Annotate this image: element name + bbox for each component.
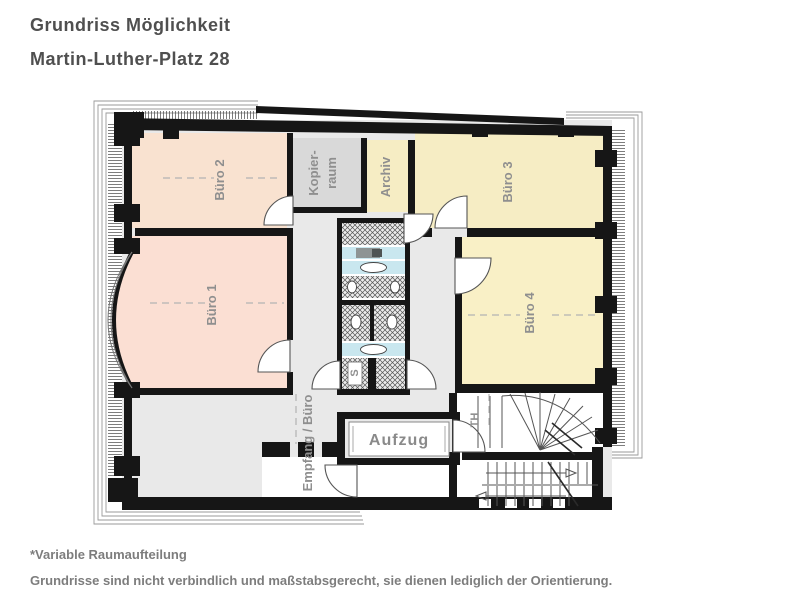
room-buero-2 <box>132 133 287 228</box>
toilet-icon <box>351 315 361 329</box>
label-buero-1: Büro 1 <box>204 284 219 325</box>
wall-core-top <box>337 218 410 223</box>
wall-right <box>603 126 612 447</box>
wc-core <box>342 223 405 389</box>
wall-buero1-buero2 <box>135 228 293 236</box>
footnote-variable: *Variable Raumaufteilung <box>30 542 790 568</box>
wall-aufzug-top <box>337 412 460 419</box>
page-subtitle: Martin-Luther-Platz 28 <box>30 42 231 76</box>
wall-buero3-buero4 <box>467 228 603 237</box>
toilet-icon <box>387 315 397 329</box>
label-empfang: Empfang / Büro <box>300 395 315 492</box>
hatch-band-top <box>131 111 259 119</box>
label-aufzug: Aufzug <box>369 432 429 449</box>
sink-icon <box>361 345 387 355</box>
page-title: Grundriss Möglichkeit <box>30 8 231 42</box>
wall-buero4-left <box>455 294 462 388</box>
page: Grundriss Möglichkeit Martin-Luther-Plat… <box>0 0 800 600</box>
footnote-disclaimer: Grundrisse sind nicht verbindlich und ma… <box>30 568 790 594</box>
label-archiv: Archiv <box>378 156 393 197</box>
wall-buero1-empfang <box>135 388 293 395</box>
floorplan: Büro 2 Büro 1 Büro 3 Büro 4 Kopier- raum… <box>0 0 800 600</box>
wall-kopier-bottom <box>293 207 361 213</box>
wc-floor-hatch <box>342 223 405 245</box>
label-schacht: S <box>349 369 361 376</box>
label-treppenhaus: TH <box>469 413 481 428</box>
sink-icon <box>361 263 387 273</box>
toilet-icon <box>348 281 357 293</box>
hatch-band-right <box>612 128 625 448</box>
wall-th-stair <box>462 452 603 460</box>
label-kopierraum-1: Kopier- <box>306 150 321 196</box>
label-buero-4: Büro 4 <box>522 292 537 334</box>
title-block: Grundriss Möglichkeit Martin-Luther-Plat… <box>30 8 231 76</box>
label-buero-2: Büro 2 <box>212 159 227 200</box>
label-kopierraum-2: raum <box>324 157 339 189</box>
wall-buero4-bottom <box>455 384 612 393</box>
footer-block: *Variable Raumaufteilung Grundrisse sind… <box>30 542 790 594</box>
toilet-icon <box>391 281 400 293</box>
label-buero-3: Büro 3 <box>500 161 515 202</box>
